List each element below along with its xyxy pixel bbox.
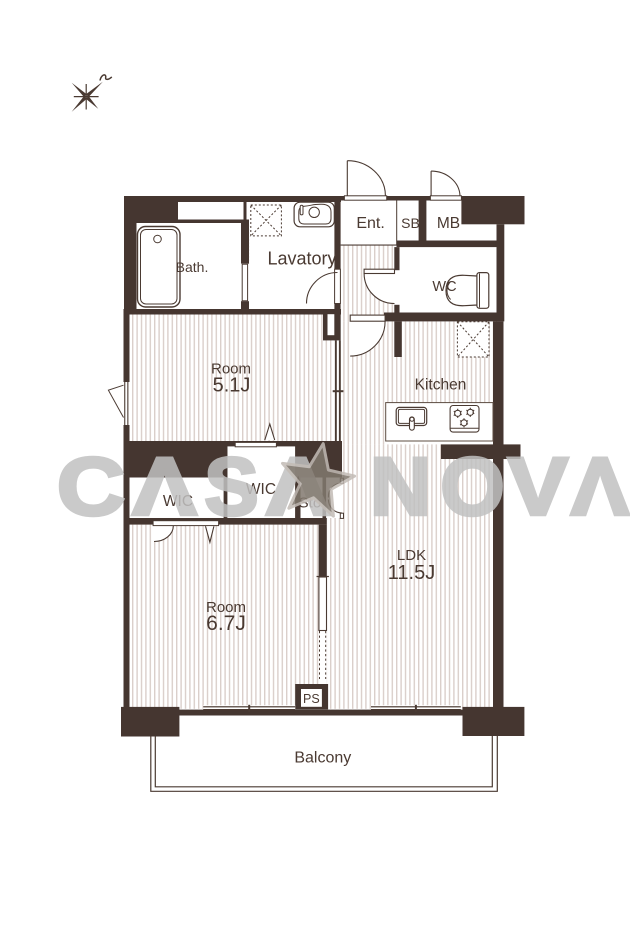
svg-text:V: V (508, 442, 568, 533)
svg-text:Λ: Λ (133, 442, 197, 533)
svg-text:11.5J: 11.5J (388, 562, 435, 584)
svg-text:6.7J: 6.7J (206, 612, 246, 635)
svg-text:Bath.: Bath. (176, 259, 209, 275)
svg-text:C: C (57, 442, 125, 533)
svg-text:Lavatory: Lavatory (267, 248, 336, 268)
svg-text:5.1J: 5.1J (213, 375, 251, 397)
svg-text:N: N (370, 442, 431, 533)
svg-text:PS: PS (303, 692, 320, 706)
svg-text:SB: SB (401, 215, 420, 231)
svg-text:S: S (205, 442, 259, 533)
svg-text:MB: MB (437, 215, 460, 232)
svg-text:Λ: Λ (571, 442, 629, 533)
svg-text:Kitchen: Kitchen (415, 377, 467, 394)
svg-text:WC: WC (432, 279, 456, 295)
svg-text:Balcony: Balcony (294, 750, 351, 767)
svg-text:Ent.: Ent. (356, 215, 384, 232)
svg-text:O: O (441, 442, 505, 533)
